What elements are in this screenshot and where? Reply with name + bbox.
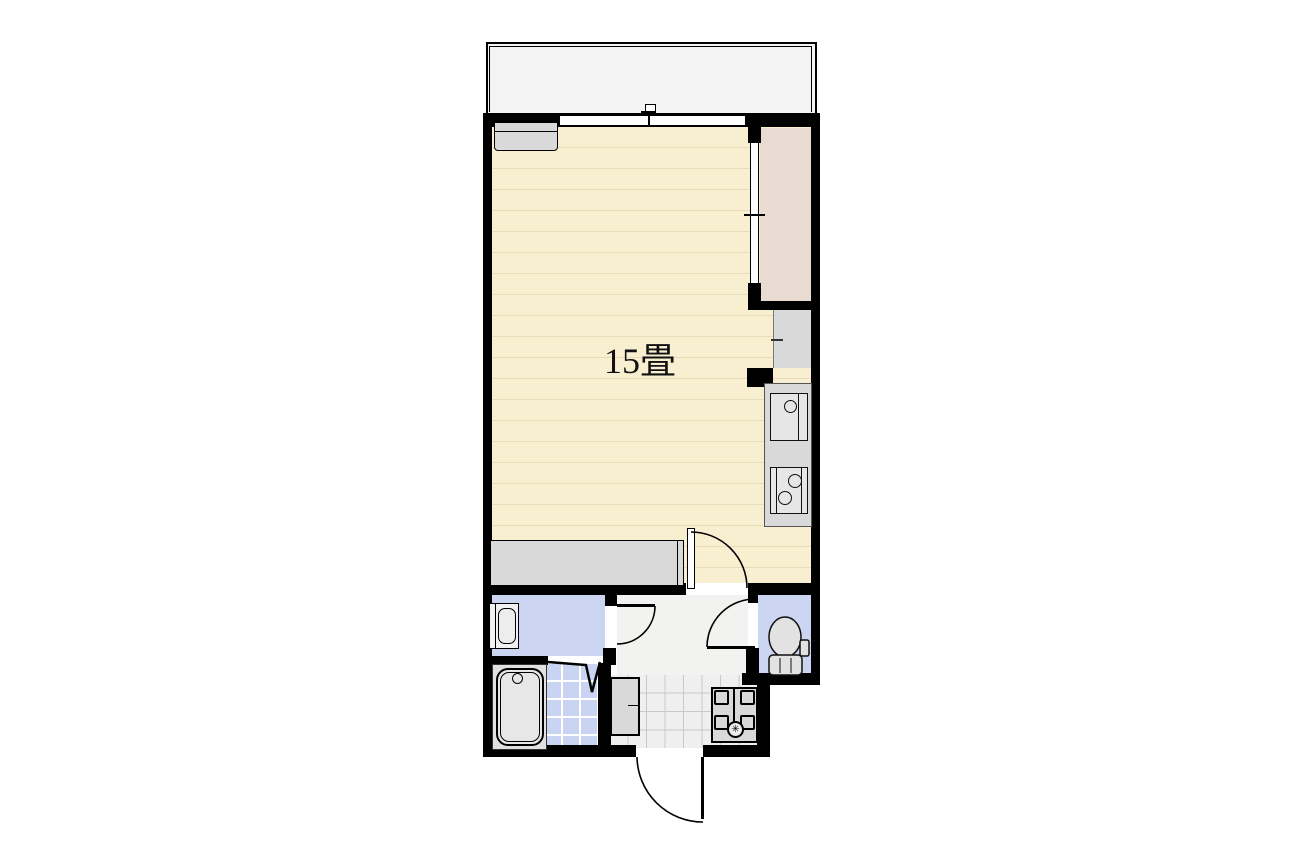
wall (748, 283, 761, 301)
wall (757, 685, 770, 750)
wall-cabinet (494, 122, 558, 151)
wall (605, 595, 617, 606)
washbasin (489, 603, 519, 649)
wall (748, 583, 820, 595)
washbasin-edge (495, 604, 496, 648)
wall (748, 127, 761, 143)
wall-cabinet-edge (495, 131, 557, 132)
pan-corner (714, 690, 729, 705)
washbasin-bowl (498, 608, 516, 644)
closet-door-mark (744, 214, 765, 216)
balcony-railing-line (489, 46, 812, 112)
wall (742, 673, 820, 685)
pan-corner (740, 690, 755, 705)
washing-machine-pan: ✳ (711, 687, 758, 743)
drain-icon: ✳ (727, 721, 744, 738)
faucet-icon (784, 400, 797, 413)
wall (748, 301, 811, 310)
hallway (617, 595, 748, 675)
wall (703, 745, 770, 757)
gas-stove (770, 467, 808, 514)
window-lock-mark (645, 104, 656, 112)
closet (760, 128, 811, 301)
wall (746, 648, 759, 673)
sink-edge (798, 394, 799, 440)
wall (748, 595, 758, 603)
entrance-door-arc (637, 757, 703, 822)
storage-counter-edge (677, 541, 678, 585)
shoe-cabinet (610, 677, 640, 736)
stove-burner-icon (788, 474, 802, 488)
wall (811, 113, 820, 685)
washroom-door (617, 604, 655, 607)
floor-plan: ✳ 15畳 (0, 0, 1300, 860)
pan-drain-line (733, 689, 735, 725)
main-room-door (687, 528, 695, 589)
refrigerator-space-mark (771, 339, 783, 341)
toilet-room (758, 595, 811, 673)
room-area-label: 15畳 (575, 332, 705, 384)
stove-edge (776, 468, 777, 513)
stove-burner-icon (778, 491, 792, 505)
entrance-door (701, 757, 704, 819)
closet-sliding-door (750, 143, 759, 283)
stove-edge (801, 468, 802, 513)
storage-counter (490, 540, 684, 586)
toilet-door (707, 646, 755, 649)
sliding-window (560, 115, 745, 126)
bathtub-drain-icon (512, 673, 523, 684)
shoe-cabinet-mark (628, 705, 638, 706)
bathroom-tile-floor (545, 664, 598, 748)
